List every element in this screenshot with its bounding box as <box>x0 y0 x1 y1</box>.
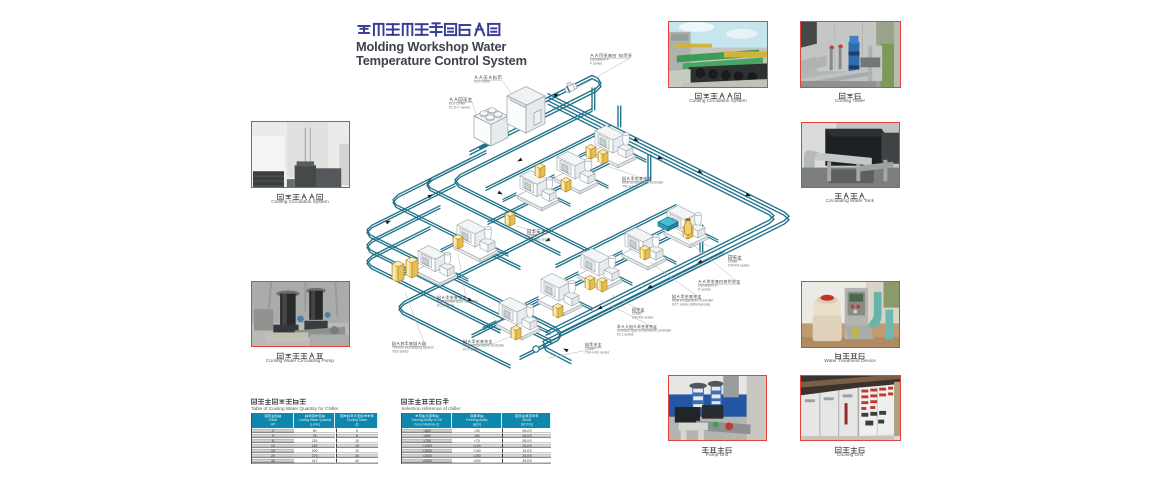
svg-text:CW-KS series: CW-KS series <box>632 315 654 319</box>
svg-text:D series: D series <box>698 287 711 291</box>
svg-text:KCD series: KCD series <box>437 303 454 307</box>
svg-text:Model: Model <box>522 418 531 422</box>
svg-text:CA-n-KS series: CA-n-KS series <box>527 237 551 241</box>
svg-text:ECO-C series: ECO-C series <box>449 105 470 109</box>
svg-text:(L/min): (L/min) <box>310 423 320 427</box>
svg-text:Force Machine (t): Force Machine (t) <box>415 423 440 427</box>
svg-text:Cooling Water Quantity: Cooling Water Quantity <box>298 418 331 422</box>
svg-text:(t): (t) <box>355 423 358 427</box>
svg-text:F series: F series <box>590 61 602 65</box>
svg-text:KCT series: KCT series <box>463 347 480 351</box>
svg-text:Chiller: Chiller <box>268 418 278 422</box>
svg-text:CW-n-KS series: CW-n-KS series <box>585 350 610 354</box>
svg-text:Eco Carter: Eco Carter <box>474 80 491 84</box>
svg-text:CW-KS series: CW-KS series <box>728 263 750 267</box>
svg-text:HP: HP <box>271 423 275 427</box>
svg-text:KCL series: KCL series <box>617 332 634 336</box>
svg-text:Freezing Ability: Freezing Ability <box>466 418 488 422</box>
svg-text:TW series: TW series <box>622 184 638 188</box>
svg-text:(kg/h): (kg/h) <box>473 423 481 427</box>
svg-text:(RC/KS): (RC/KS) <box>521 423 533 427</box>
svg-text:TES series: TES series <box>392 349 409 353</box>
svg-text:KCT series (KBS/special): KCT series (KBS/special) <box>672 302 710 306</box>
svg-text:Forming Ability of CM: Forming Ability of CM <box>412 418 443 422</box>
svg-text:Cooling Tower: Cooling Tower <box>346 418 367 422</box>
